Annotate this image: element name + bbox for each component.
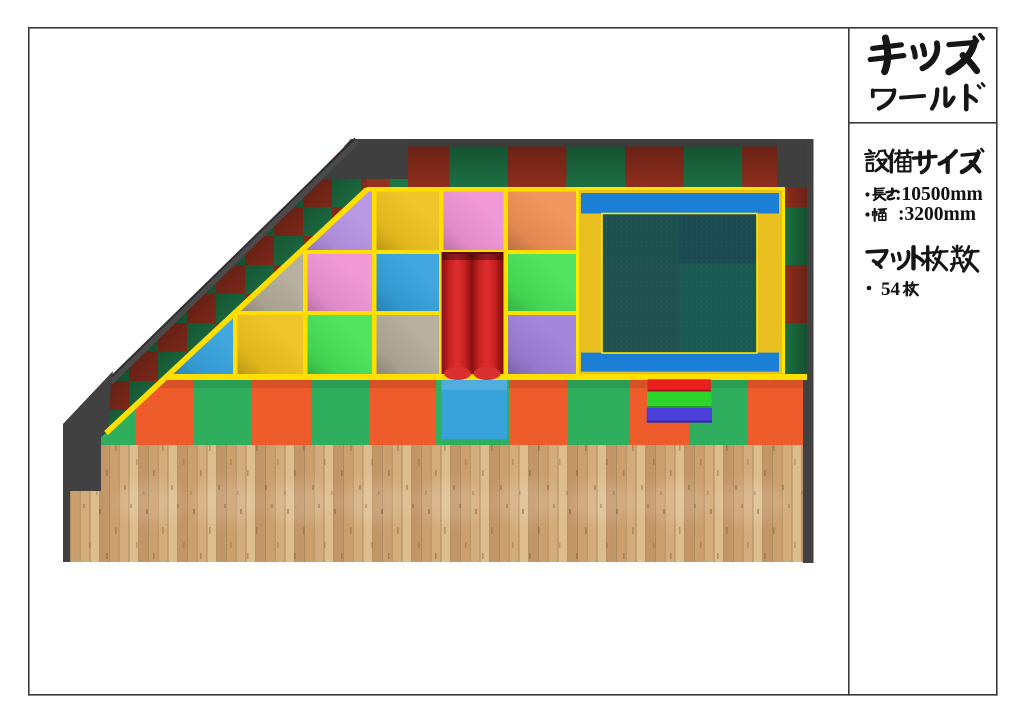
svg-text::3200mm: :3200mm [898,204,976,225]
svg-text::10500mm: :10500mm [895,184,983,205]
svg-text:54: 54 [881,279,901,300]
